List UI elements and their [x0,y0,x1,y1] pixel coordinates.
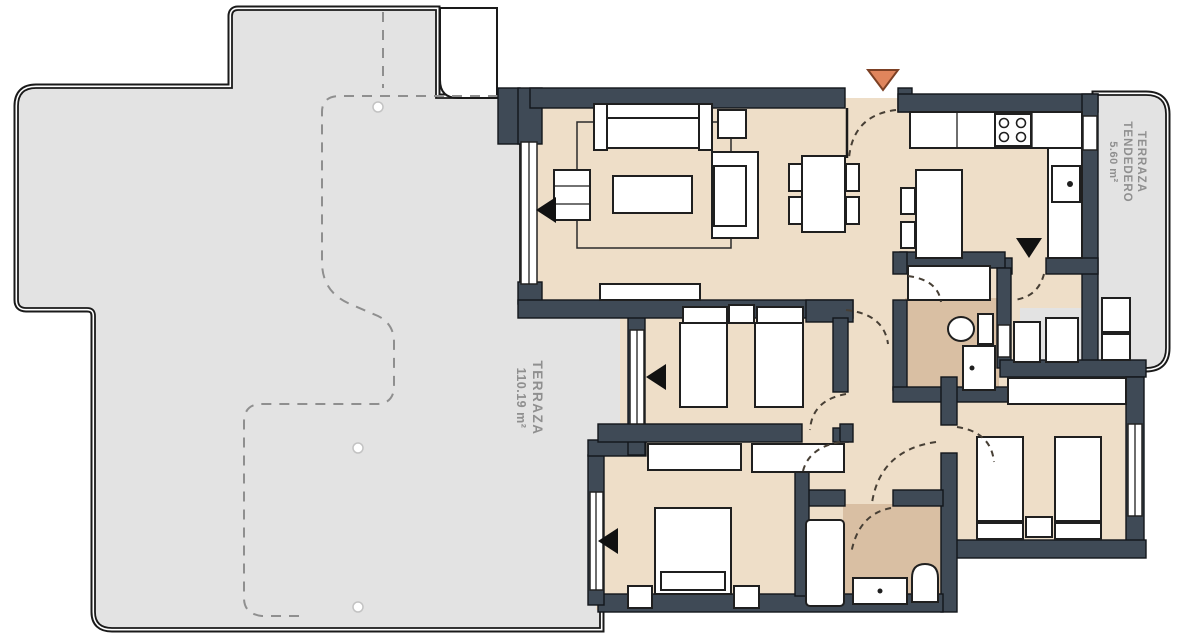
nightstand [1026,517,1052,537]
wall-kitchen-bottom-b [1046,258,1098,274]
single-bed [755,323,803,407]
nightstand [729,305,754,323]
wall-hall-left-a [833,318,848,392]
terrace-marker-1 [373,102,383,112]
floor-plan-drawing: TERRAZA 110.19 m² [0,0,1180,640]
dining-chair [789,197,802,224]
armchair [712,152,758,238]
sofa [594,104,712,150]
coffee-table [613,176,692,213]
laundry-shelf [1102,334,1130,360]
island-stool [901,188,915,214]
terrace-top-structure [440,8,497,98]
wall-bedroom1-bottom-b [840,424,853,442]
terrace-label-name: TERRAZA [530,361,545,436]
wall-bathroom2-right [941,453,957,612]
laundry-label-area: 5.60 m² [1107,141,1119,182]
laundry-label-name: TERRAZA [1135,131,1147,193]
single-bed [1055,437,1101,521]
island-stool [901,222,915,248]
nightstand [734,586,759,608]
terrace-marker-3 [353,602,363,612]
wardrobe [1008,378,1126,404]
toilet-icon [912,564,938,602]
bedroom3-window [1128,424,1142,516]
dining-table [802,156,845,232]
laundry-label-type: TENDEDERO [1121,121,1133,202]
wall-bedroom1-bottom-a [598,424,802,442]
pillow [977,523,1023,539]
shower-column [806,520,844,606]
wardrobe [648,444,741,470]
sideboard [600,284,700,300]
nightstand [628,586,652,608]
dining-chair [846,197,859,224]
floor-plan-page: TERRAZA 110.19 m² [0,0,1180,640]
vanity-icon [853,578,907,604]
tv-unit [554,170,590,220]
entry-marker-icon [868,70,898,90]
wardrobe [752,444,844,472]
wall-top-kitchen [898,94,1098,112]
dining-chair [846,164,859,191]
pillow [661,572,725,590]
washer [1014,322,1040,362]
hob-icon [995,114,1031,146]
pillow [683,307,727,323]
wall-bathroom2-top-a [808,490,845,506]
terrace-marker-2 [353,443,363,453]
wall-bathroom1-left-a [893,252,907,274]
kitchen-island [916,170,962,258]
single-bed [680,323,727,407]
wall-bedroom3-left-upper [941,377,957,425]
terrace-label-area: 110.19 m² [514,368,528,429]
single-bed [977,437,1023,521]
wall-bathroom2-top-b [893,490,943,506]
pillow [757,307,803,323]
dining-chair [789,164,802,191]
dryer [1046,318,1078,362]
laundry-shelf [1102,298,1130,332]
kitchen-sink-icon [1052,166,1080,202]
wall-bedroom3-bottom [950,540,1146,558]
bathroom1-window [998,325,1010,357]
pillow [1055,523,1101,539]
shower-tray [908,266,990,300]
kitchen-window [1083,116,1097,150]
wall-corner-top-left [498,88,520,144]
wall-bathroom1-left-b [893,300,907,390]
bedroom1-window [630,330,644,424]
side-table [718,110,746,138]
washbasin-icon [963,346,995,390]
living-window [521,142,537,284]
